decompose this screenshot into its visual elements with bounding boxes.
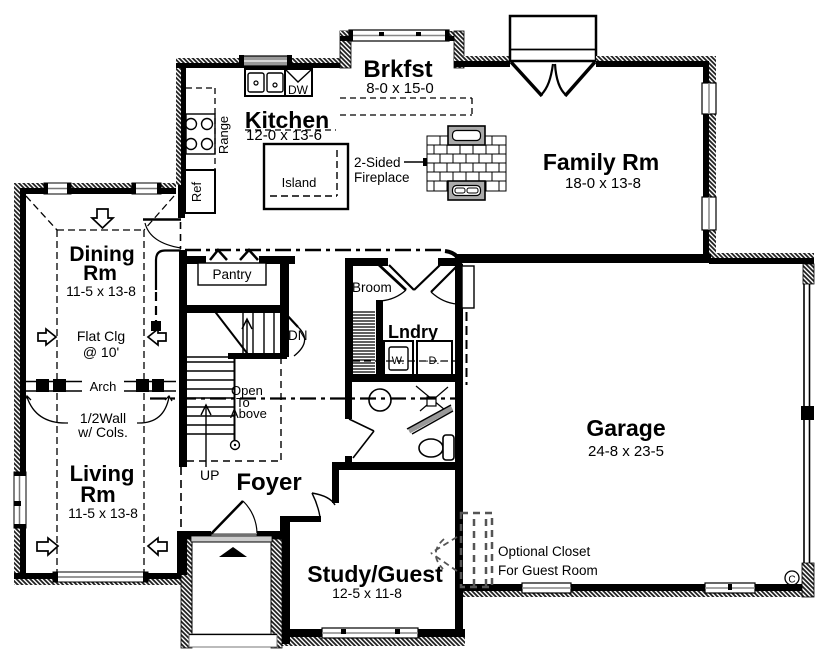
- svg-text:Optional Closet: Optional Closet: [498, 544, 591, 559]
- svg-text:11-5 x 13-8: 11-5 x 13-8: [68, 505, 138, 521]
- svg-text:Broom: Broom: [352, 280, 392, 295]
- svg-text:DN: DN: [288, 328, 308, 343]
- svg-text:Rm: Rm: [80, 482, 115, 507]
- svg-text:18-0 x 13-8: 18-0 x 13-8: [565, 175, 641, 192]
- svg-text:2-Sided: 2-Sided: [354, 155, 401, 170]
- svg-text:DW: DW: [288, 83, 309, 97]
- svg-text:24-8 x 23-5: 24-8 x 23-5: [588, 443, 664, 460]
- svg-text:Flat Clg: Flat Clg: [77, 328, 125, 344]
- svg-text:11-5 x 13-8: 11-5 x 13-8: [66, 283, 136, 299]
- svg-text:W.: W.: [392, 355, 405, 367]
- svg-text:Arch: Arch: [90, 379, 117, 394]
- svg-text:Range: Range: [216, 116, 231, 154]
- svg-text:Garage: Garage: [586, 415, 665, 441]
- svg-text:12-5 x 11-8: 12-5 x 11-8: [332, 585, 402, 601]
- svg-text:Island: Island: [282, 175, 317, 190]
- svg-text:Rm: Rm: [83, 262, 117, 285]
- svg-text:@ 10': @ 10': [83, 344, 119, 360]
- svg-text:Lndry: Lndry: [388, 322, 438, 342]
- svg-text:Brkfst: Brkfst: [363, 56, 432, 83]
- svg-text:Above: Above: [230, 406, 267, 421]
- svg-text:Ref: Ref: [189, 181, 204, 202]
- svg-text:12-0 x 13-6: 12-0 x 13-6: [246, 127, 322, 144]
- svg-text:Family Rm: Family Rm: [543, 149, 659, 175]
- svg-text:For Guest Room: For Guest Room: [498, 563, 598, 578]
- svg-text:Fireplace: Fireplace: [354, 170, 410, 185]
- svg-text:Foyer: Foyer: [236, 469, 301, 496]
- svg-text:Study/Guest: Study/Guest: [307, 561, 443, 587]
- svg-text:C: C: [788, 575, 795, 586]
- svg-text:w/ Cols.: w/ Cols.: [77, 424, 128, 440]
- svg-text:8-0 x 15-0: 8-0 x 15-0: [366, 80, 434, 97]
- svg-text:Pantry: Pantry: [212, 267, 251, 282]
- svg-text:UP: UP: [200, 467, 219, 483]
- svg-text:-D.-: -D.-: [425, 355, 444, 367]
